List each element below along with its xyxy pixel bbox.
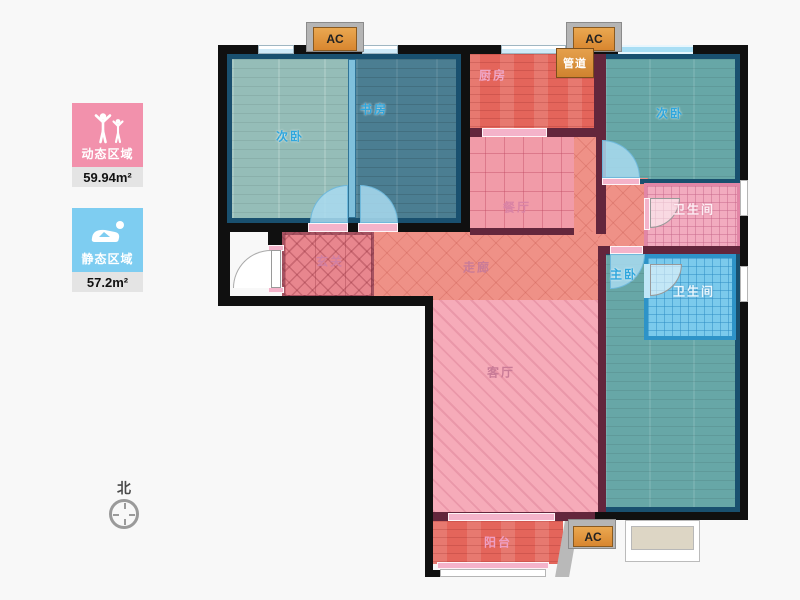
ac-unit-bottom: AC [568, 519, 616, 549]
wall-left [218, 45, 227, 232]
window-right-upper [740, 180, 748, 216]
compass-north-label: 北 [117, 478, 131, 498]
legend-dynamic-label: 动态区域 [81, 145, 133, 162]
wall-living-right [598, 254, 606, 512]
wall-kitchen-right [594, 50, 606, 137]
window-study-top [362, 45, 398, 54]
sill-bedroom-right-door [602, 178, 640, 185]
floor-corridor-strip [574, 137, 598, 234]
legend-static-label: 静态区域 [81, 250, 133, 267]
wall-notch-left [218, 232, 230, 298]
label-master-bedroom: 主卧 [610, 266, 638, 283]
sill-kitchen-pass [482, 128, 547, 137]
wall-living-left [425, 296, 433, 577]
legend-dynamic-area: 59.94m² [72, 167, 143, 187]
sill-balcony-window [437, 562, 549, 569]
window-bedroom-right-top [618, 45, 693, 54]
legend-static-card: 静态区域 [72, 208, 143, 272]
legend-static-area: 57.2m² [72, 272, 143, 292]
label-bathroom-lower: 卫生间 [673, 283, 715, 300]
label-bedroom-second-right: 次卧 [656, 105, 684, 122]
wall-master-bottom [595, 512, 748, 520]
floor-dining [466, 134, 574, 234]
label-kitchen: 厨房 [479, 67, 507, 84]
label-corridor: 走廊 [463, 259, 491, 276]
ac-label-bottom: AC [584, 530, 601, 544]
label-dining: 餐厅 [503, 199, 531, 216]
partition-bedroom-study [348, 59, 356, 218]
floorplan-page: { "legend": { "dynamic": { "label": "动态区… [0, 0, 800, 600]
ac-label-top-left: AC [326, 32, 343, 46]
dynamic-people-icon [88, 112, 128, 144]
window-bedroom-left-top [258, 45, 294, 54]
ac-unit-top-left: AC [306, 22, 364, 52]
bay-window-sill [631, 526, 694, 550]
label-balcony: 阳台 [484, 534, 512, 551]
label-living-room: 客厅 [487, 364, 515, 381]
compass-icon [109, 499, 139, 529]
bay-window [625, 520, 700, 562]
label-bathroom-upper: 卫生间 [673, 201, 715, 218]
duct-label: 管道 [563, 55, 587, 71]
duct-box: 管道 [556, 48, 594, 78]
label-foyer: 玄关 [316, 253, 344, 270]
floor-living-room [433, 300, 598, 512]
wall-bottom-left [218, 296, 433, 306]
window-balcony-bottom [440, 569, 546, 577]
sill-balcony-door [448, 513, 555, 521]
wall-dining-bottom [470, 228, 574, 235]
window-right-lower [740, 266, 748, 302]
ac-label-top-right: AC [585, 32, 602, 46]
sill-master-door [610, 246, 643, 254]
static-sleeper-icon [87, 217, 129, 247]
door-entry-leaf [271, 250, 281, 288]
label-study: 书房 [360, 101, 388, 118]
sill-bedroom-left-door [308, 223, 348, 232]
door-entry-swing [233, 250, 271, 288]
label-bedroom-second-left: 次卧 [276, 128, 304, 145]
legend-dynamic-card: 动态区域 [72, 103, 143, 167]
wall-leftblock-right [461, 45, 470, 232]
sill-study-door [358, 223, 398, 232]
